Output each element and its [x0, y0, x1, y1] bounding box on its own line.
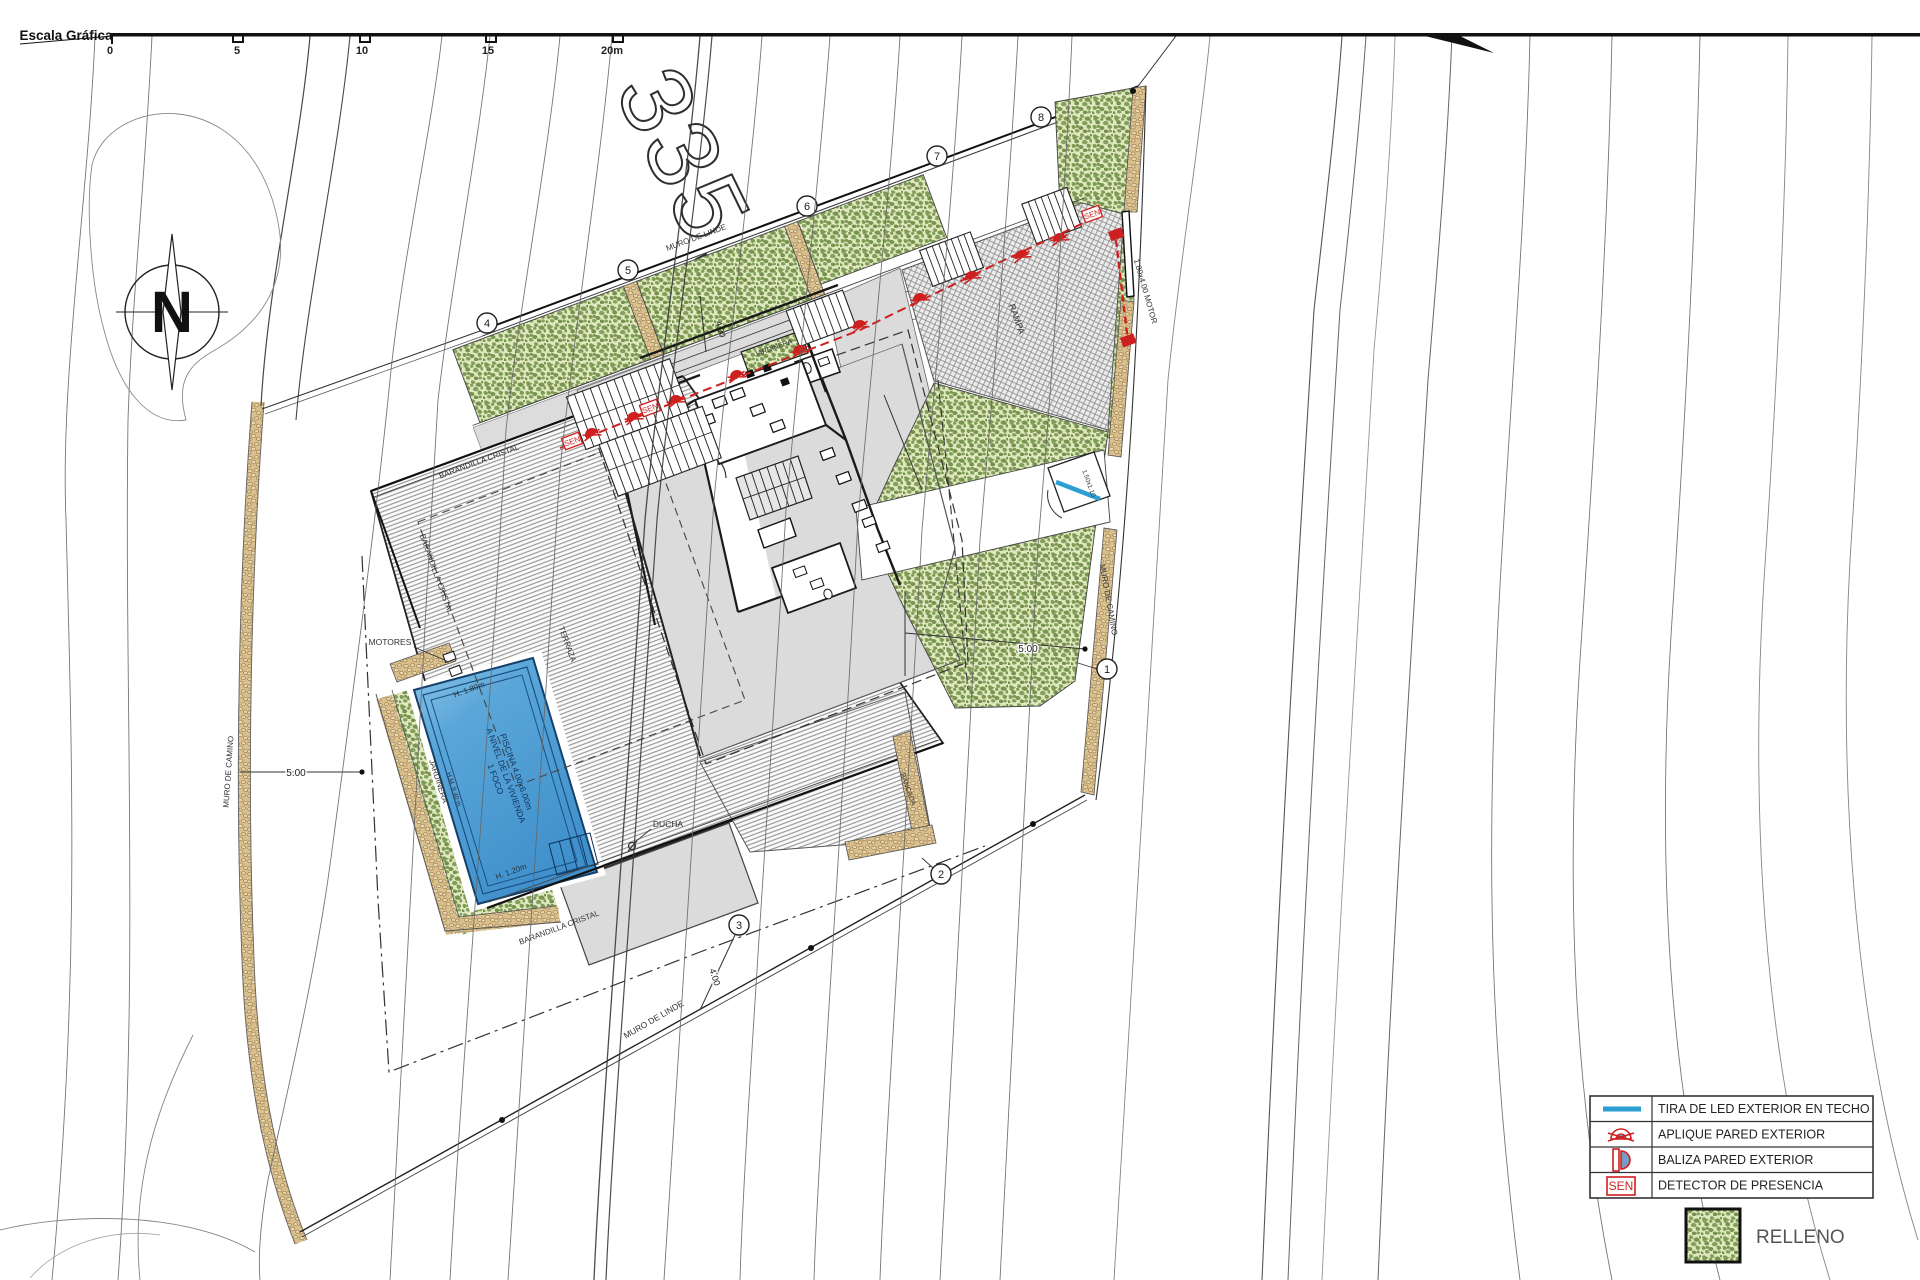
svg-text:20m: 20m: [601, 45, 623, 57]
svg-text:BALIZA PARED EXTERIOR: BALIZA PARED EXTERIOR: [1658, 1153, 1813, 1167]
svg-text:5: 5: [234, 45, 240, 57]
svg-text:4: 4: [484, 318, 490, 330]
svg-text:SEN: SEN: [1609, 1179, 1634, 1193]
svg-text:3: 3: [736, 920, 742, 932]
svg-text:5: 5: [625, 265, 631, 277]
svg-text:10: 10: [356, 45, 368, 57]
svg-text:7: 7: [934, 151, 940, 163]
svg-text:5.00: 5.00: [1018, 644, 1038, 655]
svg-text:N: N: [151, 280, 193, 345]
svg-text:DETECTOR DE PRESENCIA: DETECTOR DE PRESENCIA: [1658, 1179, 1824, 1193]
svg-text:5.00: 5.00: [286, 768, 306, 779]
svg-text:MOTORES: MOTORES: [369, 637, 412, 647]
svg-text:DUCHA: DUCHA: [653, 819, 684, 829]
svg-text:0: 0: [107, 45, 113, 57]
svg-text:Escala Gráfica: Escala Gráfica: [19, 28, 113, 43]
svg-text:1: 1: [1104, 664, 1110, 676]
svg-text:TIRA DE LED EXTERIOR EN TECHO: TIRA DE LED EXTERIOR EN TECHO: [1658, 1102, 1870, 1116]
svg-text:15: 15: [482, 45, 494, 57]
svg-text:APLIQUE PARED EXTERIOR: APLIQUE PARED EXTERIOR: [1658, 1128, 1825, 1142]
svg-text:8: 8: [1038, 112, 1044, 124]
svg-text:2: 2: [938, 869, 944, 881]
svg-text:6: 6: [804, 201, 810, 213]
svg-text:RELLENO: RELLENO: [1756, 1227, 1845, 1248]
